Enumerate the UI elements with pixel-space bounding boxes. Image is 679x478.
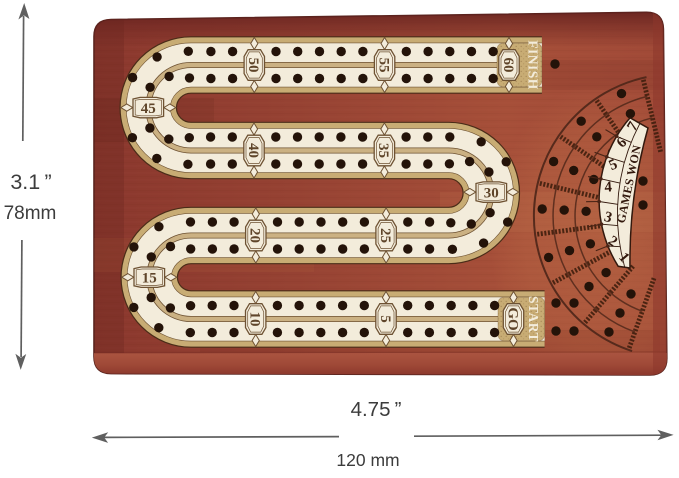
svg-text:FINISH: FINISH: [526, 40, 541, 90]
svg-text:78mm: 78mm: [4, 203, 57, 224]
svg-text:30: 30: [484, 185, 499, 201]
svg-text:20: 20: [247, 228, 263, 243]
svg-text:60: 60: [500, 58, 516, 73]
svg-text:15: 15: [142, 270, 157, 286]
svg-text:5: 5: [377, 315, 393, 323]
svg-text:3.1 ”: 3.1 ”: [10, 170, 51, 194]
svg-text:25: 25: [377, 228, 393, 243]
svg-text:4.75 ”: 4.75 ”: [351, 398, 402, 421]
svg-text:50: 50: [245, 58, 261, 73]
svg-text:45: 45: [141, 101, 156, 117]
svg-text:GO: GO: [504, 307, 520, 330]
svg-text:START: START: [526, 296, 541, 342]
svg-text:55: 55: [375, 58, 391, 73]
svg-text:35: 35: [375, 143, 391, 158]
svg-text:120 mm: 120 mm: [336, 450, 399, 470]
svg-text:40: 40: [245, 143, 261, 158]
svg-text:10: 10: [247, 312, 263, 327]
